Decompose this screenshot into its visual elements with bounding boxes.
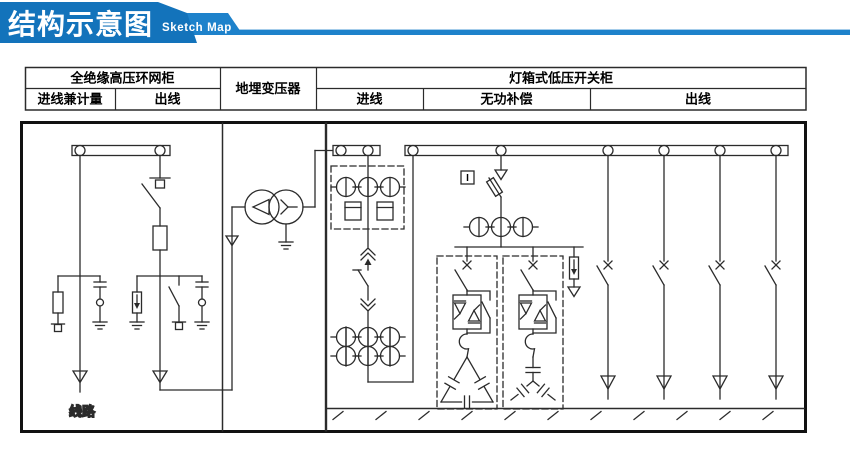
breaker-ct-group [331, 327, 405, 366]
lv-surge-arrester [568, 247, 580, 297]
surge-arrester-drop [130, 276, 144, 329]
thyristor-module-icon [519, 295, 547, 329]
plug-terminal-icon [173, 322, 186, 330]
page-title: 结构示意图 [8, 8, 153, 40]
discharge-arrow-icon [568, 287, 580, 297]
outgoing-feeder-4 [765, 156, 783, 400]
hv-busbar [72, 146, 170, 156]
reactor-icon [525, 334, 534, 357]
compensation-feeder [455, 156, 583, 248]
header-hv-incoming-metering: 进线兼计量 [37, 92, 102, 107]
header-lv-outgoing: 出线 [685, 92, 711, 107]
energy-meter-icon [345, 202, 361, 220]
contactor-blade [521, 270, 533, 290]
lv-incoming-section [331, 146, 413, 383]
capacitive-indicator-icon [93, 276, 107, 329]
hv-incoming-feeder [52, 156, 108, 393]
header-banner: 结构示意图 Sketch Map [0, 2, 850, 43]
flow-arrow-icon [495, 170, 507, 180]
outgoing-feeder-1 [597, 156, 615, 400]
banner-strip [236, 30, 850, 35]
page-subtitle: Sketch Map [162, 22, 232, 34]
header-lv-cabinet: 灯箱式低压开关柜 [509, 71, 613, 86]
plug-terminal-icon [52, 324, 65, 332]
sketch-map-canvas: 结构示意图 Sketch Map 全绝缘高压环网柜 地埋变压器 灯箱式低压开关柜… [0, 0, 850, 462]
capacitor-bank-delta [437, 247, 497, 409]
earth-icon [279, 242, 293, 249]
contactor-blade [455, 270, 467, 290]
transformer-icon [245, 190, 303, 224]
earth-bar [327, 409, 804, 420]
lv-outgoing-feeders [597, 156, 783, 400]
buried-transformer [232, 151, 333, 250]
thyristor-module-icon [453, 295, 481, 329]
hv-ring-main-unit: 线路 [52, 146, 239, 420]
wye-capacitor-icon [511, 357, 555, 400]
header-reactive-compensation: 无功补偿 [479, 92, 532, 107]
legend-table: 全绝缘高压环网柜 地埋变压器 灯箱式低压开关柜 进线兼计量 出线 进线 无功补偿… [26, 68, 807, 111]
fuse-icon [153, 226, 167, 250]
outgoing-feeder-2 [653, 156, 671, 400]
header-lv-incoming: 进线 [356, 92, 382, 107]
reactive-compensation-section [437, 156, 583, 410]
delta-winding-icon [253, 200, 269, 215]
earthing-switch-drop [169, 276, 186, 330]
indicator-label: I [466, 173, 469, 184]
breaker-blade [358, 270, 368, 286]
current-transformer-icon [508, 218, 538, 237]
capacitive-indicator-icon [195, 276, 209, 329]
header-hv-cabinet: 全绝缘高压环网柜 [69, 71, 174, 86]
lv-busbar-incoming [333, 146, 380, 156]
delta-capacitor-icon [441, 357, 493, 408]
withdrawable-breaker [353, 248, 375, 311]
lv-main-busbar [405, 146, 788, 156]
header-transformer: 地埋变压器 [235, 81, 301, 96]
reactor-icon [459, 334, 468, 357]
line-label: 线路 [69, 404, 96, 419]
current-transformer-icon [375, 178, 405, 197]
capacitor-bank-wye [503, 247, 563, 409]
earth-icon [130, 322, 144, 329]
energy-meter-icon [377, 202, 393, 220]
voltage-transformer-drop [52, 276, 65, 332]
header-hv-outgoing: 出线 [154, 92, 180, 107]
outgoing-feeder-3 [709, 156, 727, 400]
screenshot-root: 结构示意图 Sketch Map 全绝缘高压环网柜 地埋变压器 灯箱式低压开关柜… [0, 0, 850, 462]
